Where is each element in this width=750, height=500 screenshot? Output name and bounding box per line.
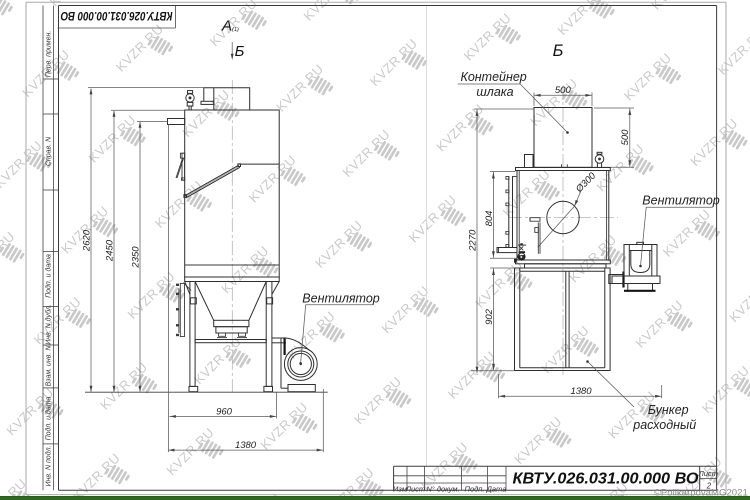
svg-text:500: 500: [620, 129, 631, 146]
svg-text:шлака: шлака: [476, 85, 513, 99]
svg-text:КВТУ.026.031.00.000 ВО: КВТУ.026.031.00.000 ВО: [513, 471, 700, 488]
svg-text:Лист: Лист: [698, 469, 718, 478]
svg-text:2620: 2620: [82, 229, 93, 252]
svg-text:Подп. и дата: Подп. и дата: [45, 396, 53, 440]
svg-text:Дата: Дата: [486, 485, 507, 494]
svg-text:Контейнер: Контейнер: [460, 70, 526, 84]
svg-text:Подп. и дата: Подп. и дата: [45, 254, 53, 298]
svg-text:Б: Б: [553, 42, 564, 60]
svg-text:Вентилятор: Вентилятор: [302, 292, 379, 306]
svg-text:Взам. инв. N: Взам. инв. N: [46, 345, 53, 387]
svg-text:N° докум.: N° докум.: [426, 485, 459, 494]
svg-text:902: 902: [484, 308, 495, 325]
svg-text:Бункер: Бункер: [648, 403, 689, 417]
svg-text:Лист: Лист: [405, 485, 425, 494]
svg-text:Вентилятор: Вентилятор: [642, 194, 719, 208]
svg-text:КВТУ.026.031.00.000 ВО: КВТУ.026.031.00.000 ВО: [61, 9, 173, 21]
svg-text:Справ. N: Справ. N: [46, 136, 53, 166]
svg-text:Подп.: Подп.: [465, 485, 485, 494]
svg-text:2350: 2350: [131, 246, 142, 269]
svg-text:Перв. примен.: Перв. примен.: [46, 31, 53, 78]
svg-text:1380: 1380: [235, 440, 257, 451]
svg-text:Инв. N подл.: Инв. N подл.: [45, 445, 53, 486]
svg-text:А: А: [221, 18, 232, 35]
svg-text:расходный: расходный: [632, 418, 696, 432]
svg-text:1380: 1380: [570, 386, 592, 397]
svg-text:804: 804: [484, 211, 495, 227]
svg-text:(1): (1): [232, 27, 239, 33]
svg-text:Б: Б: [235, 43, 245, 60]
svg-text:500: 500: [555, 85, 572, 96]
svg-text:2270: 2270: [467, 229, 478, 252]
svg-text:2450: 2450: [105, 239, 116, 262]
svg-text:960: 960: [216, 406, 233, 417]
svg-text:Инв. N дубл.: Инв. N дубл.: [45, 304, 53, 345]
